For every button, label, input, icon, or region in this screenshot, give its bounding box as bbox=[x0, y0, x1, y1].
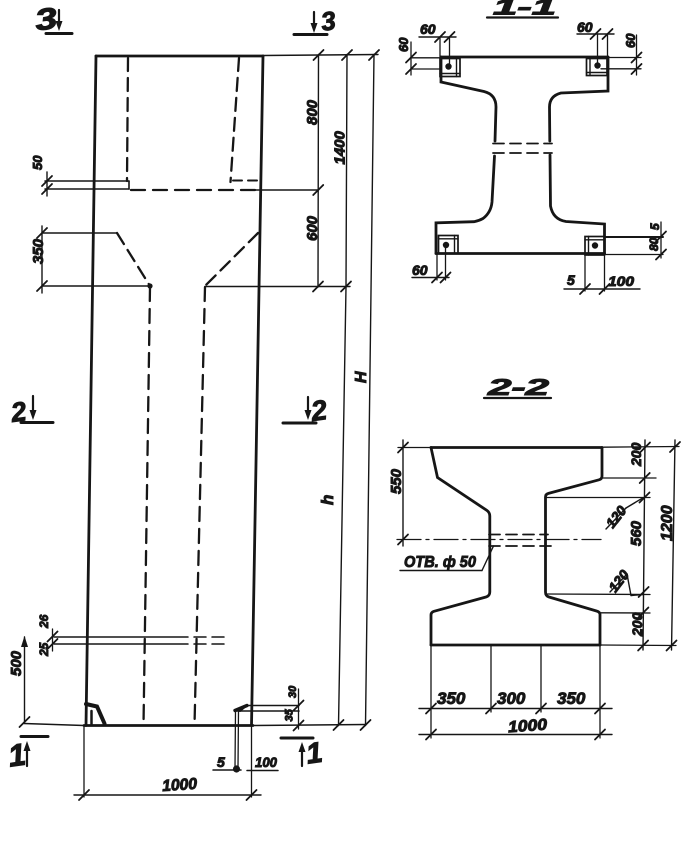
svg-text:200: 200 bbox=[628, 442, 644, 467]
svg-text:H: H bbox=[353, 371, 370, 383]
svg-text:1000: 1000 bbox=[507, 717, 547, 737]
svg-text:30: 30 bbox=[287, 685, 299, 698]
svg-text:3: 3 bbox=[319, 5, 338, 37]
svg-text:60: 60 bbox=[396, 37, 411, 52]
svg-text:100: 100 bbox=[608, 273, 634, 289]
svg-text:50: 50 bbox=[30, 155, 45, 170]
svg-text:120: 120 bbox=[605, 567, 632, 595]
svg-text:ОТВ. ф 50: ОТВ. ф 50 bbox=[404, 554, 476, 571]
svg-text:80: 80 bbox=[647, 237, 661, 251]
svg-text:2-2: 2-2 bbox=[486, 374, 549, 400]
svg-text:800: 800 bbox=[304, 99, 321, 125]
svg-text:5: 5 bbox=[567, 272, 575, 288]
svg-text:60: 60 bbox=[577, 19, 593, 35]
svg-text:5: 5 bbox=[648, 223, 662, 230]
svg-text:560: 560 bbox=[628, 520, 645, 546]
svg-text:60: 60 bbox=[412, 262, 428, 278]
svg-text:350: 350 bbox=[437, 689, 466, 708]
svg-text:26: 26 bbox=[37, 614, 51, 629]
svg-text:300: 300 bbox=[497, 689, 526, 708]
svg-text:25: 25 bbox=[37, 642, 51, 657]
svg-text:60: 60 bbox=[623, 33, 638, 48]
svg-text:h: h bbox=[318, 495, 337, 505]
svg-text:500: 500 bbox=[8, 650, 25, 676]
svg-text:1000: 1000 bbox=[162, 776, 198, 795]
svg-text:35: 35 bbox=[284, 708, 296, 721]
svg-text:60: 60 bbox=[420, 21, 436, 37]
svg-text:600: 600 bbox=[304, 215, 321, 241]
svg-text:1200: 1200 bbox=[659, 505, 676, 541]
svg-text:1: 1 bbox=[6, 737, 28, 774]
svg-text:550: 550 bbox=[388, 468, 405, 494]
svg-text:1: 1 bbox=[304, 737, 324, 771]
svg-text:200: 200 bbox=[629, 612, 645, 637]
svg-text:1400: 1400 bbox=[332, 130, 349, 164]
svg-text:350: 350 bbox=[30, 238, 47, 264]
svg-text:100: 100 bbox=[255, 754, 277, 770]
svg-text:350: 350 bbox=[557, 689, 586, 708]
svg-text:120: 120 bbox=[603, 502, 630, 530]
svg-text:5: 5 bbox=[217, 754, 225, 770]
